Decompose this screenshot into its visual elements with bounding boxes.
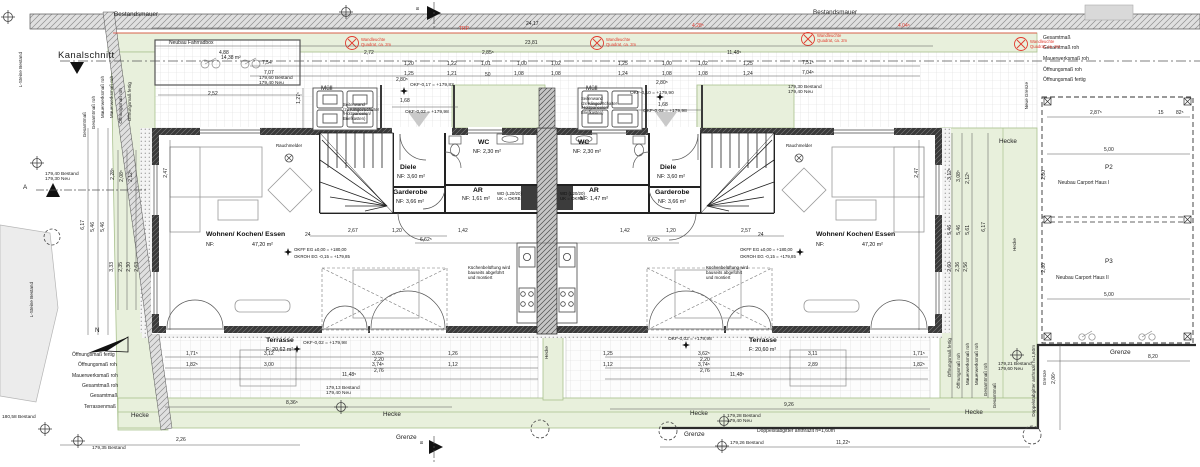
- terrace-left-paving: [158, 333, 538, 398]
- stair-right: [701, 133, 774, 213]
- neighbor-parcel: [0, 225, 58, 402]
- green-bottom-band: [118, 398, 1037, 428]
- bestandsmauer-wall: [30, 14, 1200, 29]
- terrace-right-paving: [566, 333, 930, 398]
- green-entry-left: [452, 85, 545, 128]
- muell-box-right: [578, 88, 642, 130]
- fahrradbox: [155, 40, 300, 85]
- kitchen-left: [517, 243, 537, 323]
- green-entry-right: [697, 85, 794, 128]
- party-wall: [537, 128, 557, 334]
- section-b-arrow-bottom: [429, 440, 443, 454]
- duct-left: [521, 186, 537, 210]
- floor-plan-drawing: Wohnen/ Kochen/ Essen NF: 47,20 m² Wohne…: [0, 0, 1200, 467]
- bike-stands: [1079, 331, 1155, 340]
- carport: [1042, 97, 1193, 343]
- kanalschnitt-arrow: [70, 62, 84, 74]
- kitchen-right: [557, 243, 577, 323]
- stair-left: [320, 133, 393, 213]
- duct-right: [557, 186, 573, 210]
- green-right-band: [940, 128, 1037, 398]
- green-center-hedge: [543, 333, 563, 400]
- muell-box-left: [313, 88, 377, 130]
- plan-graphics: [0, 0, 1200, 467]
